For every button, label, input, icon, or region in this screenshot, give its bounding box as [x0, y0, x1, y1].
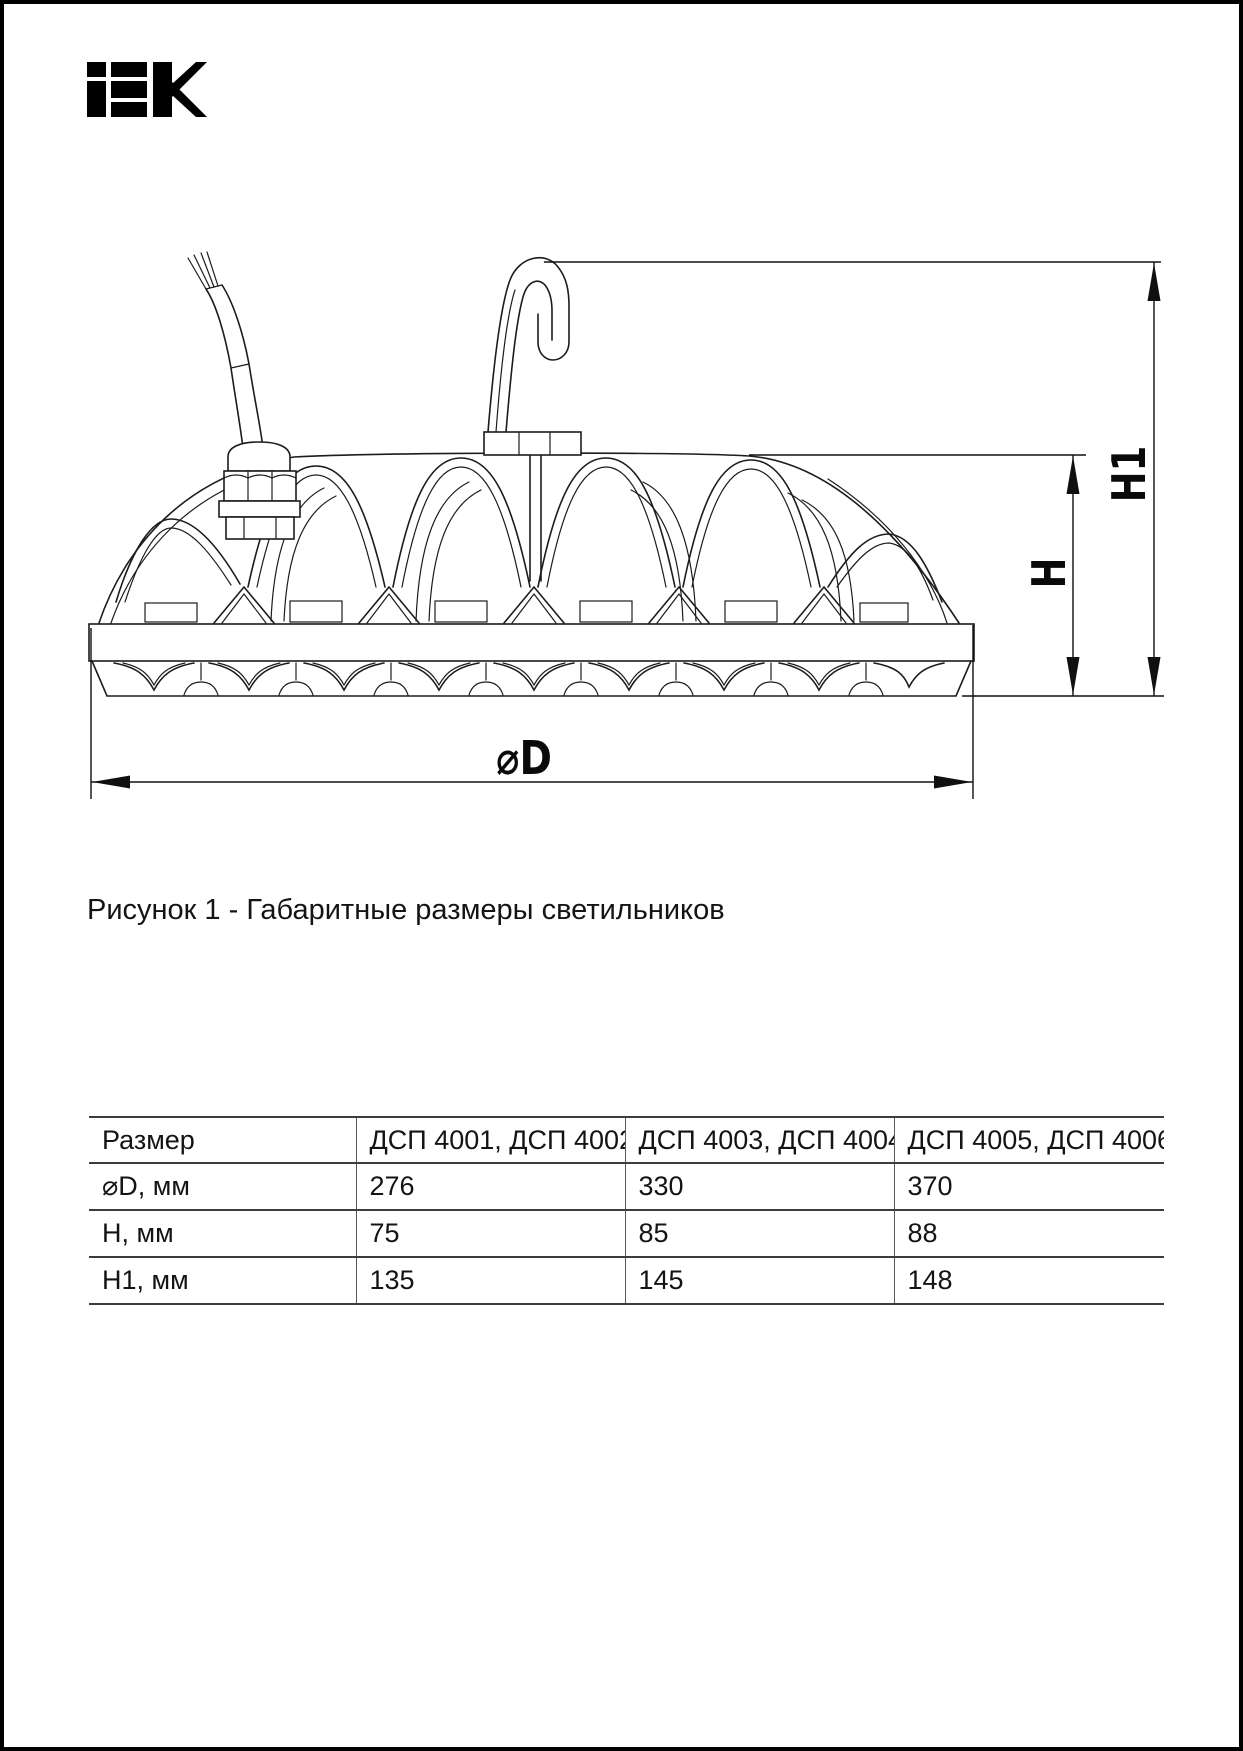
power-cable [188, 252, 263, 448]
cell-value: 330 [625, 1163, 894, 1210]
table-row: ⌀D, мм 276 330 370 [89, 1163, 1164, 1210]
cell-value: 370 [894, 1163, 1164, 1210]
dim-label-h1: H1 [1102, 446, 1156, 502]
dim-label-d: ⌀D [496, 732, 552, 786]
datasheet-page: H1 H ⌀D Рисунок 1 - Габаритные размеры с… [0, 0, 1243, 1751]
cable-gland [219, 442, 300, 539]
suspension-hook [484, 258, 581, 455]
stripped-wire-ends [188, 252, 218, 289]
cell-value: 145 [625, 1257, 894, 1304]
cell-value: 135 [356, 1257, 625, 1304]
cell-value: 75 [356, 1210, 625, 1257]
col-header-dsp-4005-4006: ДСП 4005, ДСП 4006 [894, 1117, 1164, 1163]
col-header-size: Размер [89, 1117, 356, 1163]
row-label-h: H, мм [89, 1210, 356, 1257]
table-row: H, мм 75 85 88 [89, 1210, 1164, 1257]
col-header-dsp-4003-4004: ДСП 4003, ДСП 4004 [625, 1117, 894, 1163]
table-row: H1, мм 135 145 148 [89, 1257, 1164, 1304]
dimensions-table: Размер ДСП 4001, ДСП 4002 ДСП 4003, ДСП … [89, 1116, 1164, 1305]
dim-label-h: H [1022, 558, 1076, 589]
cell-value: 85 [625, 1210, 894, 1257]
cell-value: 88 [894, 1210, 1164, 1257]
row-label-h1: H1, мм [89, 1257, 356, 1304]
row-label-diameter: ⌀D, мм [89, 1163, 356, 1210]
base-band [89, 624, 974, 661]
cell-value: 276 [356, 1163, 625, 1210]
cell-value: 148 [894, 1257, 1164, 1304]
table-header-row: Размер ДСП 4001, ДСП 4002 ДСП 4003, ДСП … [89, 1117, 1164, 1163]
base-lattice [92, 661, 971, 696]
figure-caption: Рисунок 1 - Габаритные размеры светильни… [87, 893, 725, 928]
luminaire-dimension-drawing: H1 H ⌀D [4, 4, 1243, 834]
col-header-dsp-4001-4002: ДСП 4001, ДСП 4002 [356, 1117, 625, 1163]
